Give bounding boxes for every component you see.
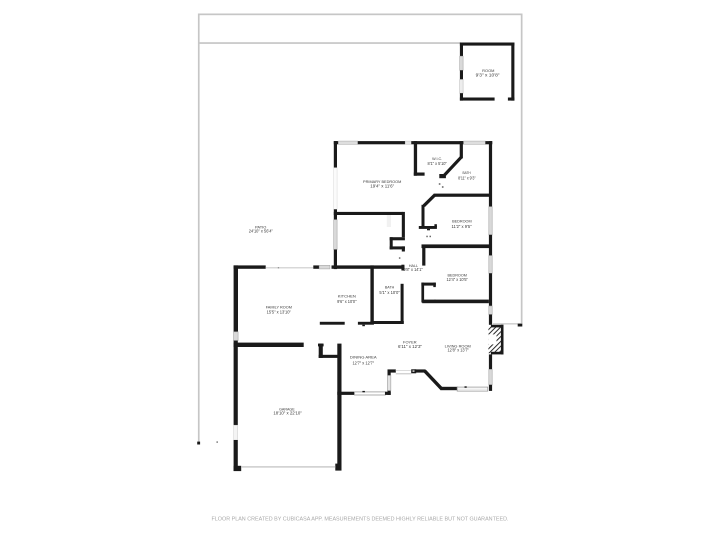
svg-text:19'4" x 11'6": 19'4" x 11'6"	[370, 184, 394, 189]
svg-text:BEDROOM: BEDROOM	[452, 219, 472, 224]
svg-text:9'6" x 10'0": 9'6" x 10'0"	[337, 299, 357, 304]
svg-text:12'8" x 13'7": 12'8" x 13'7"	[448, 348, 470, 353]
svg-text:5'1" x 10'0": 5'1" x 10'0"	[379, 290, 400, 295]
svg-text:18'10" x 22'10": 18'10" x 22'10"	[273, 411, 302, 416]
svg-text:KITCHEN: KITCHEN	[338, 294, 356, 299]
svg-text:BATH: BATH	[385, 284, 395, 289]
svg-text:6'11" x 12'3": 6'11" x 12'3"	[398, 344, 423, 349]
svg-text:DINING AREA: DINING AREA	[350, 354, 377, 359]
svg-text:9'8" x 14'1": 9'8" x 14'1"	[403, 267, 423, 272]
svg-text:24'10" x 56'4": 24'10" x 56'4"	[249, 229, 274, 234]
svg-text:9'3" x 10'8": 9'3" x 10'8"	[476, 73, 500, 78]
svg-text:FLOOR PLAN CREATED BY CUBICASA: FLOOR PLAN CREATED BY CUBICASA APP. MEAS…	[212, 516, 509, 522]
svg-text:8'11" x 9'3": 8'11" x 9'3"	[458, 175, 476, 180]
svg-text:12'4" x 10'5": 12'4" x 10'5"	[447, 277, 469, 282]
svg-text:11'2" x 9'5": 11'2" x 9'5"	[452, 224, 473, 229]
svg-text:15'5" x 13'10": 15'5" x 13'10"	[267, 309, 292, 314]
svg-text:12'7" x 12'7": 12'7" x 12'7"	[352, 360, 374, 365]
svg-text:BATH: BATH	[463, 170, 471, 175]
svg-text:8'1" x 5'10": 8'1" x 5'10"	[428, 161, 448, 166]
